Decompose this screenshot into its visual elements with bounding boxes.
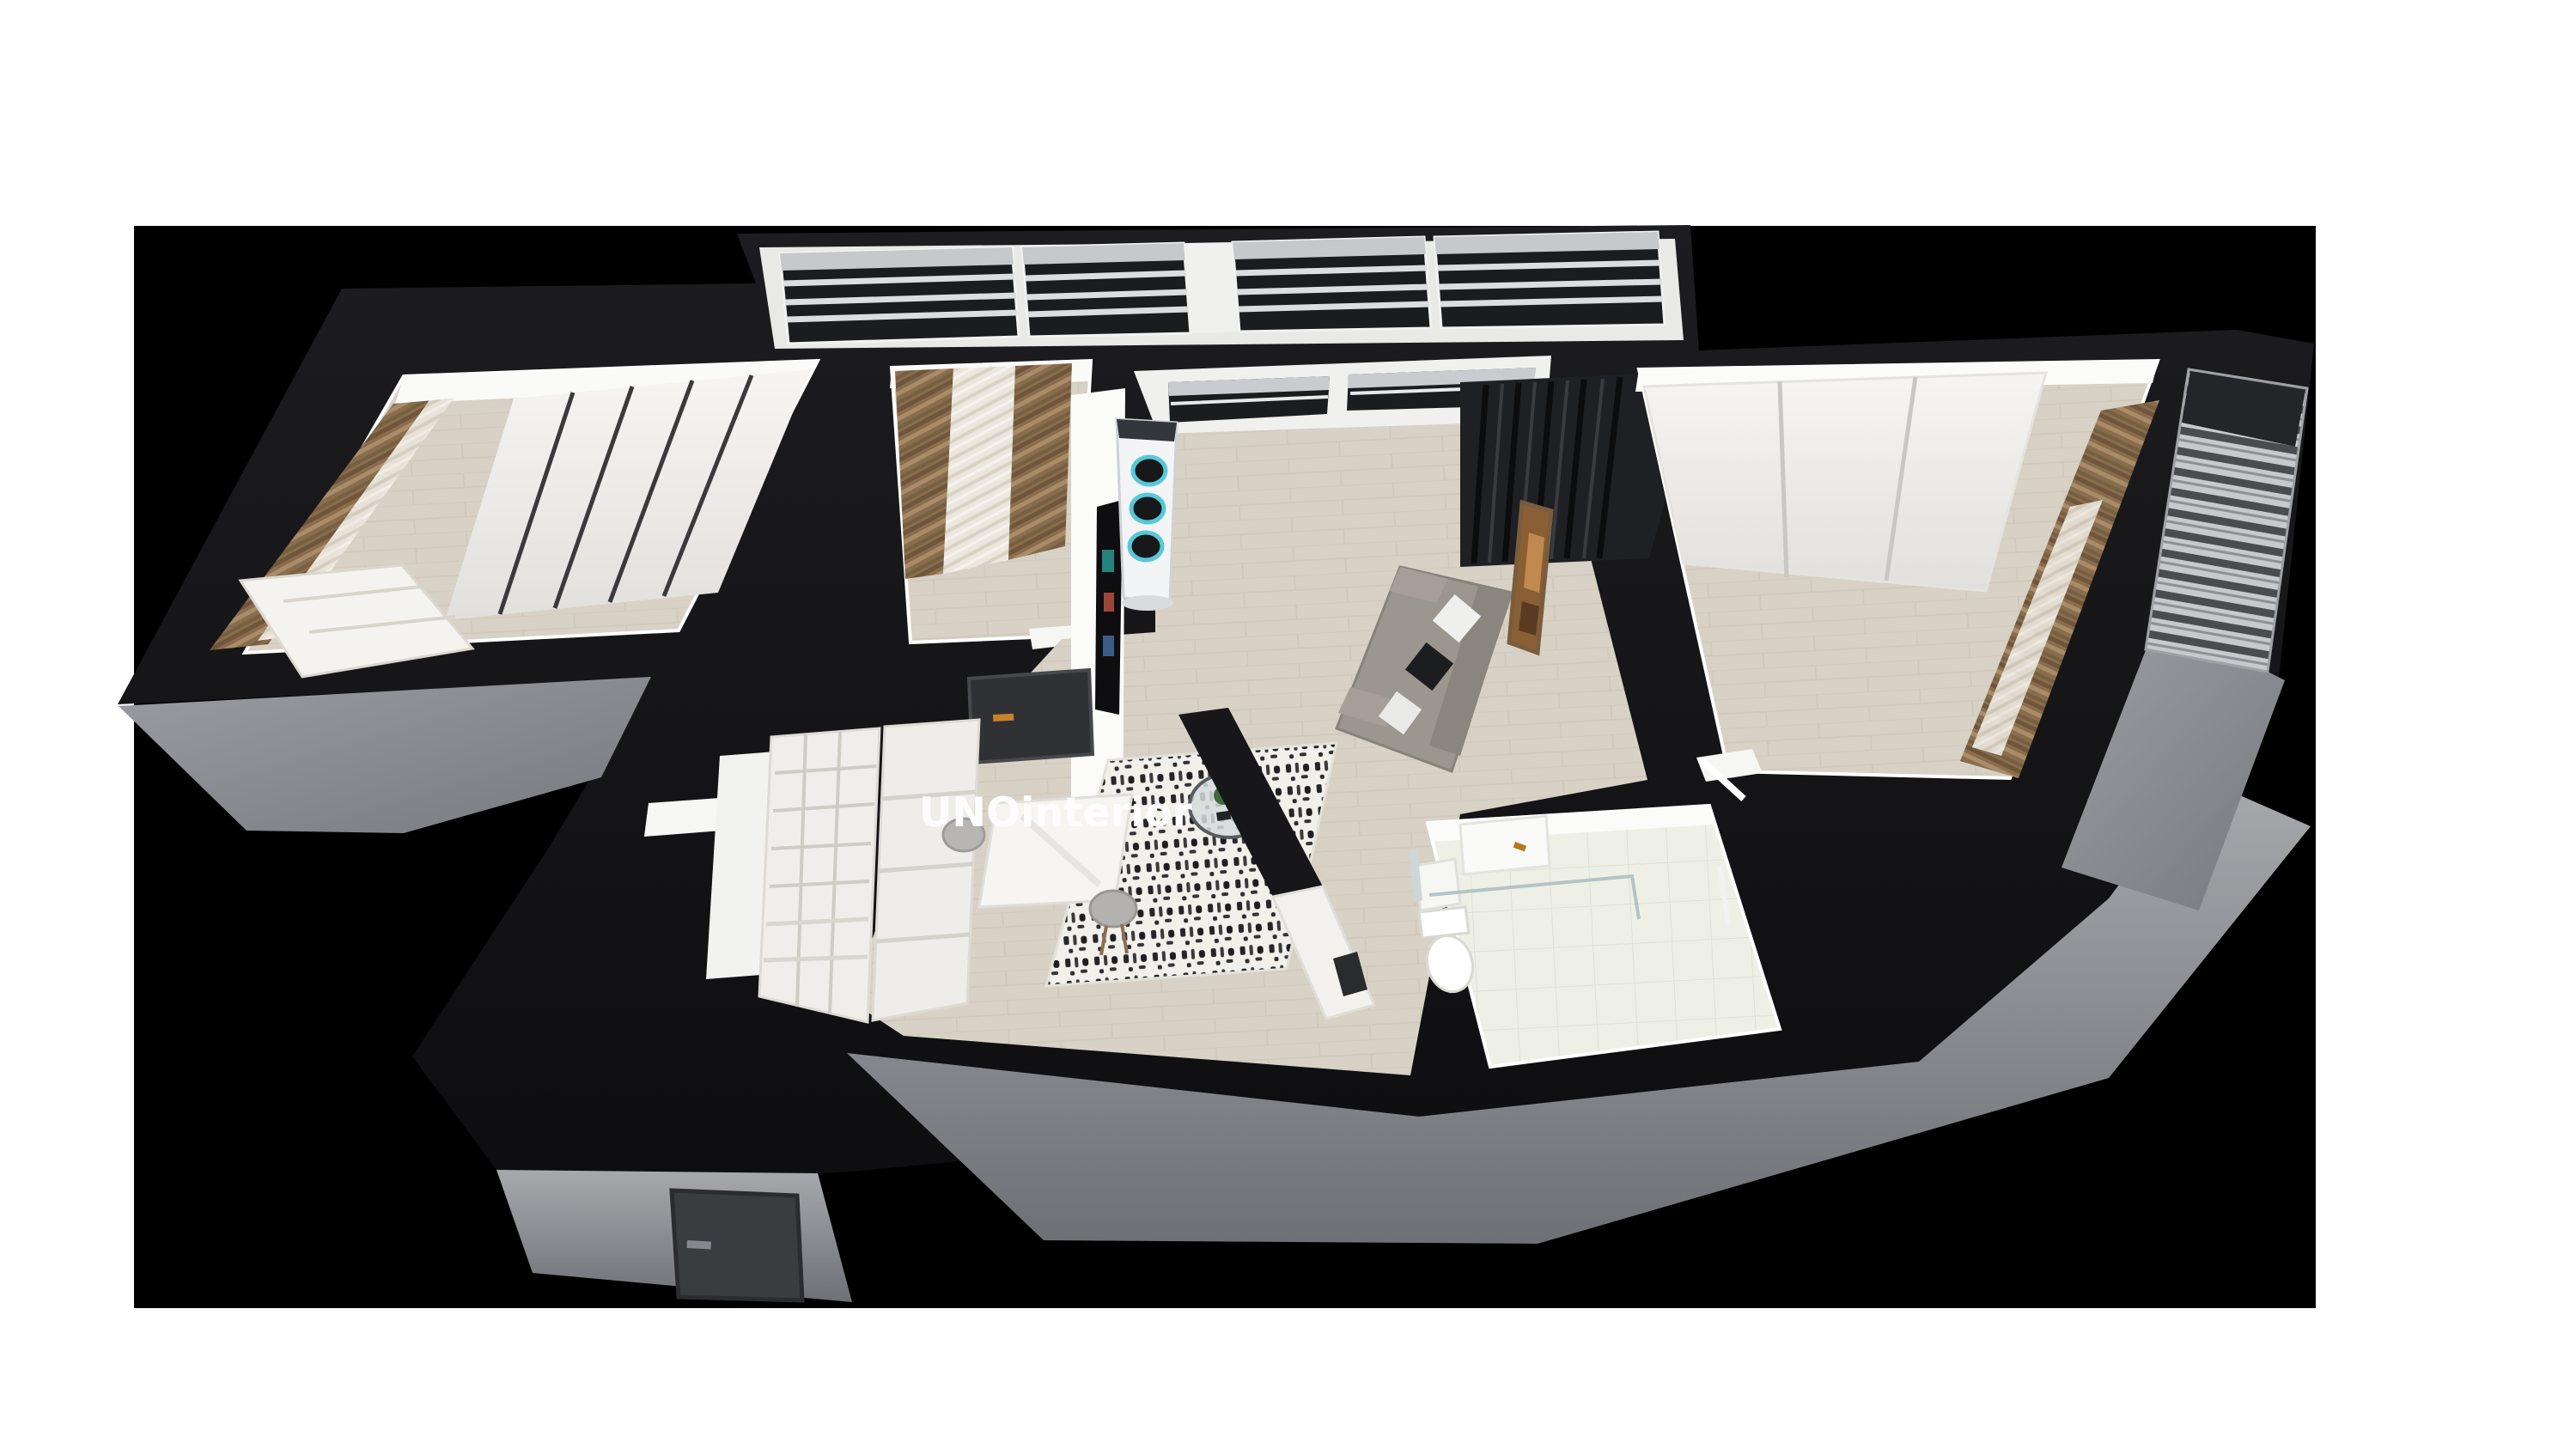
purifier-ring-3 [1130,533,1162,560]
bedroom-middle-curtains [895,363,1072,579]
tv-screen-color-2 [1104,593,1114,612]
bathroom-door [1460,816,1550,874]
watermark-text: UNOinterior [919,789,1193,837]
artwork-detail-2 [1519,601,1539,636]
balcony-mullion [1184,242,1239,333]
tv-screen-color-1 [1102,550,1114,572]
bedroom-middle [890,361,1091,649]
render-stage: UNOinterior [0,0,2576,1449]
entry-door-handle [993,714,1014,721]
blind-window-4 [1434,232,1665,328]
purifier-top-cap [1117,419,1177,441]
shelving-unit [759,728,880,1022]
blind-window-1 [780,247,1019,344]
cabinet-column [873,720,979,1020]
purifier-base [1122,595,1173,611]
floorplan-svg: UNOinterior [0,0,2576,1449]
sliding-wardrobe [1644,373,2046,591]
tv-screen-color-3 [1103,636,1114,656]
entry-door [969,670,1093,763]
blind-window-2 [1022,243,1191,337]
balcony-windows [780,232,1665,344]
purifier-ring-2 [1131,495,1164,522]
purifier-ring-1 [1133,457,1166,484]
blind-window-3 [1233,237,1431,332]
curtain-sheer-middle [943,366,1015,574]
air-purifier-tower [1117,419,1177,611]
balcony-top [759,232,1684,349]
toilet-tank [1419,907,1469,938]
curtain-brown-right [1008,363,1072,560]
exterior-door-handle [687,1240,711,1249]
